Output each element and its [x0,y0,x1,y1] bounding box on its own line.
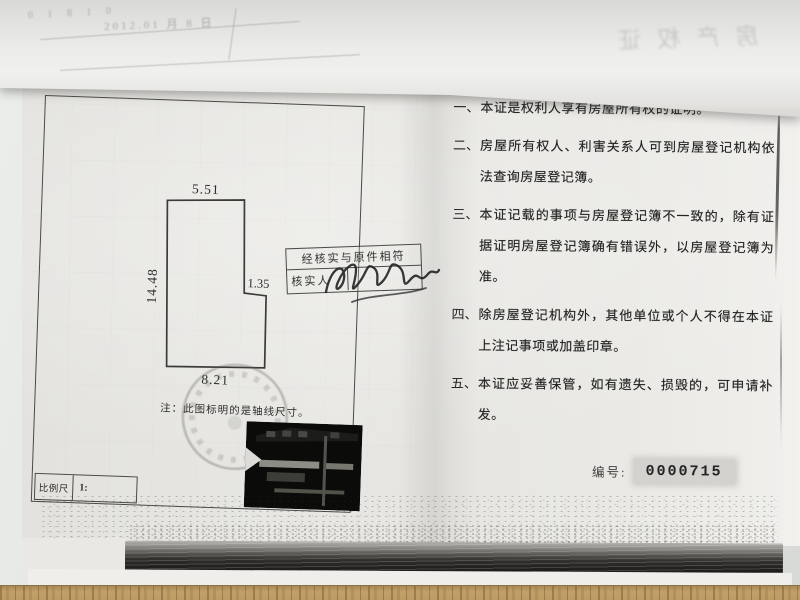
dimension-top: 5.51 [192,181,220,197]
note-text: 除房屋登记机构外，其他单位或个人不得在本证上注记事项或加盖印章。 [478,299,774,364]
serial-number: 编号: 0000715 [592,459,735,483]
wood-table-surface [0,585,800,600]
note-number: 四、 [451,299,479,361]
floor-plan-frame: 5.51 14.48 1.35 8.21 注：此图标明的是轴线尺寸。 [31,95,365,513]
note-item-2: 二、 房屋所有权人、利害关系人可到房屋登记机构依法查询房屋登记簿。 [453,130,776,195]
note-text: 本证应妥善保管，如有遗失、损毁的，可申请补发。 [478,368,774,433]
curled-page-wrap: 0 1 8 1 0 2012.01 月 8 日 房产权证 [0,0,800,130]
ghost-mirrored-text: 房产权证 [547,16,758,57]
certificate-photo: 5.51 14.48 1.35 8.21 注：此图标明的是轴线尺寸。 [0,0,800,600]
curled-previous-page: 0 1 8 1 0 2012.01 月 8 日 房产权证 [0,0,800,130]
note-number: 五、 [451,368,479,430]
note-text: 房屋所有权人、利害关系人可到房屋登记机构依法查询房屋登记簿。 [480,130,776,195]
notes-list: 一、 本证是权利人享有房屋所有权的证明。 二、 房屋所有权人、利害关系人可到房屋… [451,92,776,440]
right-page-border-line-lower [780,300,782,450]
note-number: 二、 [453,130,481,192]
dimension-left: 14.48 [144,268,160,304]
note-text: 本证记载的事项与房屋登记簿不一致的，除有证据证明房屋登记簿确有错误外，以房屋登记… [479,199,775,295]
note-item-4: 四、 除房屋登记机构外，其他单位或个人不得在本证上注记事项或加盖印章。 [451,299,774,364]
serial-label: 编号: [592,461,627,480]
dimension-step: 1.35 [247,276,269,291]
note-number: 三、 [452,199,480,292]
note-item-3: 三、 本证记载的事项与房屋登记簿不一致的，除有证据证明房屋登记簿确有错误外，以房… [452,199,775,295]
note-item-5: 五、 本证应妥善保管，如有遗失、损毁的，可申请补发。 [451,368,774,433]
ghost-date-text: 2012.01 月 8 日 [104,14,215,34]
handwritten-signature [322,250,442,312]
serial-value: 0000715 [635,460,734,484]
